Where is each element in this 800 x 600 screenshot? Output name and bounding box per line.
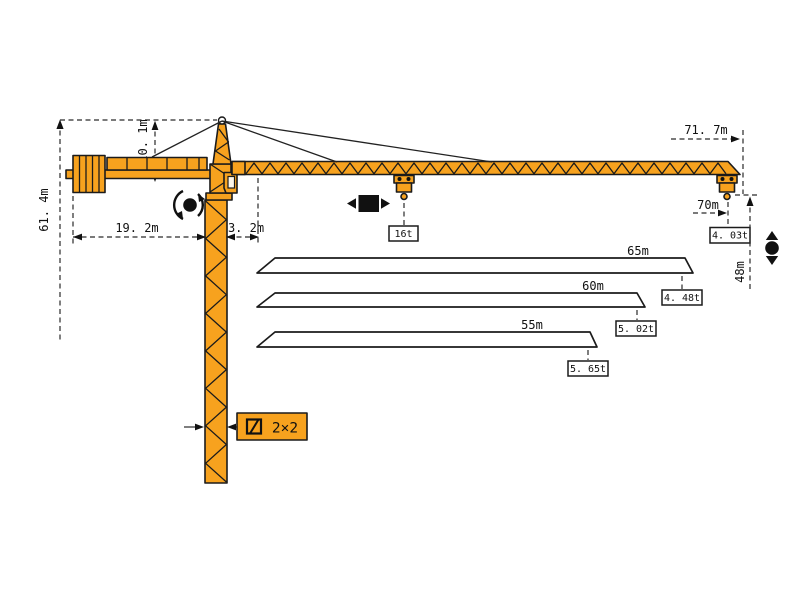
tower-head [210, 117, 237, 193]
jib-variant-length: 55m [521, 318, 543, 332]
hook-icon [401, 194, 407, 200]
mid-trolley [394, 176, 414, 200]
jib-variant-55m: 55m 5. 65t [257, 318, 608, 376]
jib-variant-length: 60m [582, 279, 604, 293]
tip-hook-icon [724, 194, 730, 200]
tip-trolley [717, 176, 737, 200]
max-radius-label: 71. 7m [684, 123, 727, 137]
diagram-canvas: 61. 4m 10. 1m [0, 0, 800, 600]
slewing-ring [206, 193, 232, 200]
slewing-icon [174, 191, 205, 219]
max-load-callout: 16t [389, 203, 418, 241]
counter-jib-label: 19. 2m [115, 221, 158, 235]
jib-variant-tip-load: 5. 02t [618, 324, 654, 335]
jib-heel [232, 162, 245, 175]
jib [232, 162, 740, 175]
mast-section-callout: 2×2 [184, 413, 307, 440]
cab-window [228, 177, 235, 189]
tower-head-label: 10. 1m [136, 119, 150, 162]
tip-load-label: 4. 03t [712, 231, 748, 242]
tip-radius-label: 70m [697, 198, 719, 212]
counterweight-block [73, 156, 105, 193]
jib-variant-tip-load: 5. 65t [570, 364, 606, 375]
trolley-travel-icon [347, 195, 390, 212]
jib-variant-length: 65m [627, 244, 649, 258]
rear-offset-label: 3. 2m [228, 221, 264, 235]
tip-load-callout: 4. 03t [710, 228, 750, 244]
counter-jib [66, 156, 211, 193]
hoisting-icon [765, 231, 779, 265]
jib-variant-60m: 60m 5. 02t [257, 279, 656, 336]
jib-variant-tip-load: 4. 48t [664, 293, 700, 304]
tie-cables [152, 121, 492, 162]
max-load-label: 16t [394, 229, 412, 240]
cat-head [213, 124, 231, 164]
crane-load-diagram: 61. 4m 10. 1m [0, 0, 800, 600]
counter-jib-platform [107, 158, 207, 171]
hook-height-label: 48m [733, 261, 747, 283]
mast-section-label: 2×2 [272, 421, 298, 437]
dim-overall-height: 61. 4m [37, 120, 64, 341]
overall-height-label: 61. 4m [37, 188, 51, 231]
